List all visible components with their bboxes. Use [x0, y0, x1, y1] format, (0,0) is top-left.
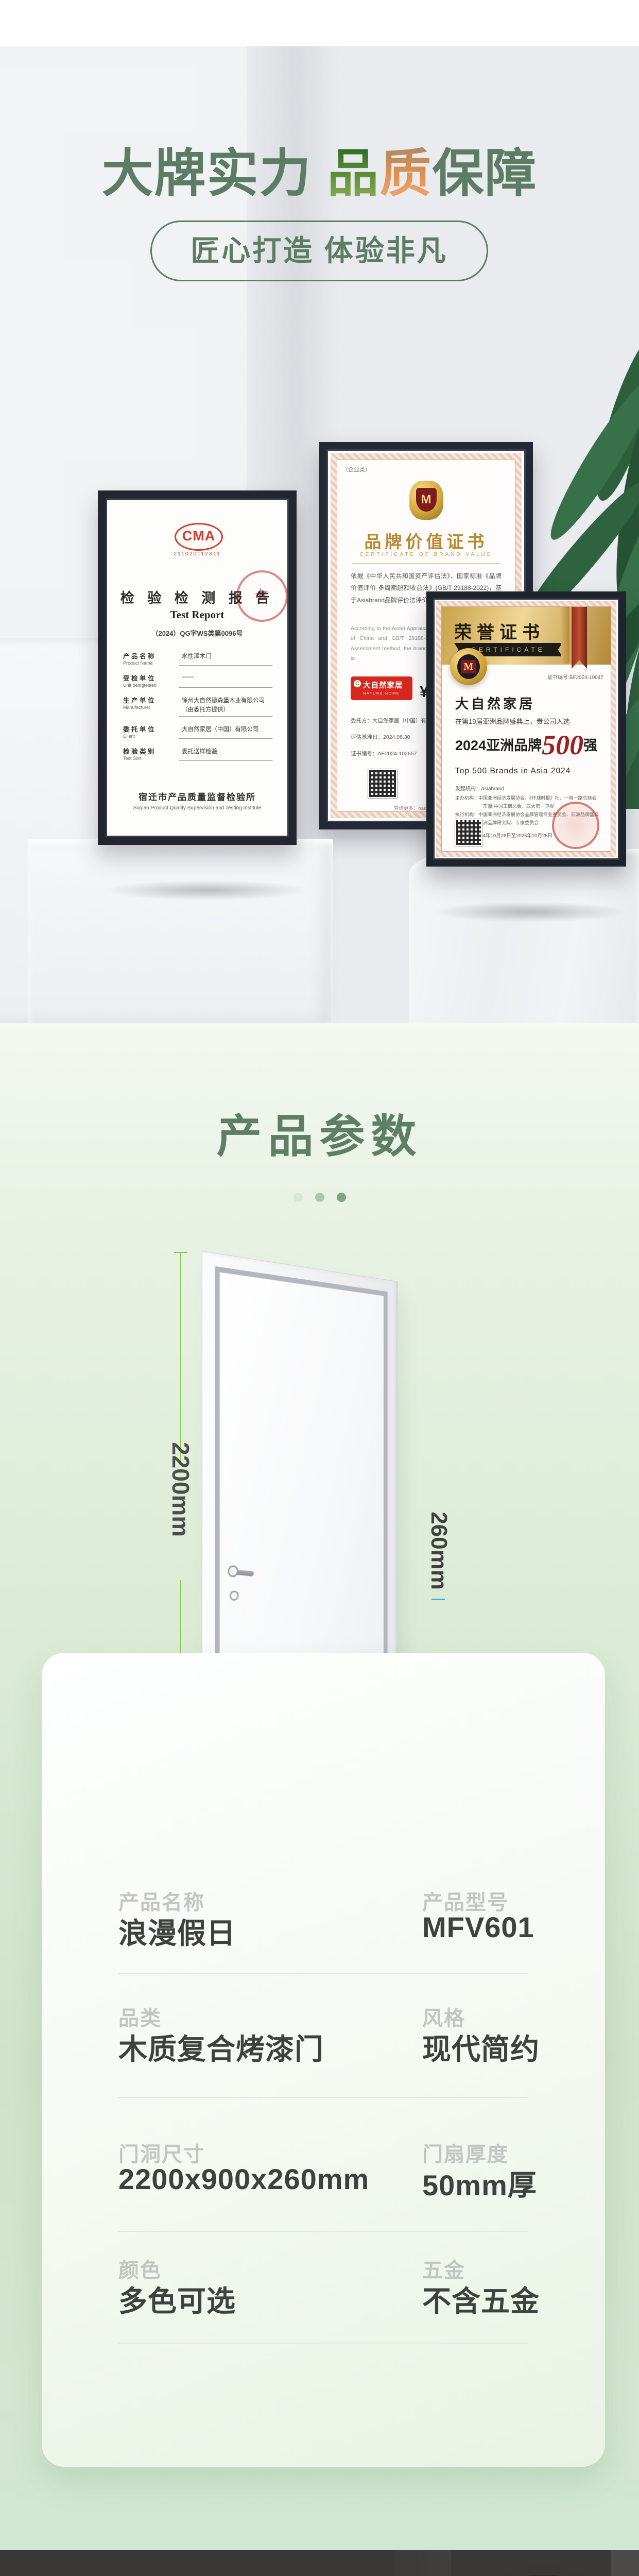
- honor-intro: 在第19届亚洲品牌盛典上，贵公司入选: [455, 716, 569, 726]
- dim-depth-label: 260mm: [426, 1510, 452, 1592]
- hero-title-zhi: 质: [379, 145, 432, 202]
- test-report-no: （2024）QG字WS类第0096号: [106, 628, 289, 638]
- nature-home-leaf-icon: C: [354, 680, 361, 687]
- brand-cert-subtitle: CERTIFICATE OF BRAND VALUE: [337, 552, 515, 557]
- certificate-honor: 荣誉证书 CERTIFICATE M 证书编号:BF2024-10047 大自然…: [426, 591, 626, 867]
- spec-value: 2200x900x260mm: [118, 2162, 369, 2196]
- params-title: 产品参数: [0, 1100, 639, 1165]
- honor-cert-no: 证书编号:BF2024-10047: [547, 673, 603, 681]
- brand-cert-tag: （企业类）: [342, 465, 371, 473]
- honor-award-en: Top 500 Brands in Asia 2024: [455, 767, 571, 776]
- honor-award-line: 2024亚洲品牌500强: [455, 733, 597, 758]
- dim-height-label: 2200mm: [167, 1442, 195, 1530]
- field-row: 生 产 单 位Manufacturer 徐州大自然德森堡木业有限公司（由委托方提…: [123, 695, 272, 717]
- honor-seal-icon: [552, 802, 599, 849]
- field-row: 检 验 类 别Test Sort 委托送样检验: [123, 746, 272, 761]
- spec-value: 木质复合烤漆门: [118, 2026, 324, 2068]
- spec-value: MFV601: [422, 1910, 534, 1944]
- honor-brand: 大自然家居: [455, 693, 535, 713]
- pedestal-left: [28, 839, 333, 1023]
- title-dots: [0, 1193, 639, 1205]
- honor-qr-code: [455, 819, 482, 846]
- hero-section: 大牌实力 品质保障 匠心打造 体验非凡 （企业类） M 品牌价值证书 CERTI…: [0, 46, 639, 1023]
- test-report-fields: 产 品 名 称Product Name 水性漆木门 受 检 单 位Unit be…: [123, 651, 272, 761]
- brand-cert-emblem-icon: M: [409, 481, 443, 520]
- service-section: 金保姆服务 全国1000+实体门店支持 咨询下单 › 上门量尺 › 签订合同 订…: [0, 2550, 639, 2576]
- field-row: 产 品 名 称Product Name 水性漆木门: [123, 651, 272, 666]
- honor-title: 荣誉证书: [454, 618, 545, 643]
- hero-title-pre: 大牌实力: [102, 145, 327, 202]
- field-row: 受 检 单 位Unit beingtested ——: [123, 673, 272, 688]
- cma-logo-icon: CMA: [175, 523, 223, 551]
- nature-home-logo: C 大自然家居 NATURE HOME: [351, 676, 412, 700]
- test-report-org: 宿迁市产品质量监督检验所: [106, 790, 289, 803]
- honor-medal-icon: M: [450, 648, 487, 685]
- test-report-subtitle: Test Report: [106, 608, 289, 621]
- cma-number: 211020112311: [106, 551, 289, 557]
- spec-value: 多色可选: [118, 2278, 236, 2320]
- spec-value: 浪漫假日: [118, 1910, 236, 1952]
- test-report-org-en: Suqian Product Quality Supervision and T…: [106, 805, 289, 811]
- service-photo: [320, 2550, 639, 2576]
- hero-subtitle-pill: 匠心打造 体验非凡: [150, 221, 488, 281]
- hero-title: 大牌实力 品质保障: [0, 147, 639, 201]
- product-params-section: 产品参数 2200mm 260mm 900mm 产品名称 浪漫假日 产品型号 M…: [0, 1023, 639, 2550]
- brand-cert-title: 品牌价值证书: [337, 528, 515, 553]
- hero-title-post: 保障: [432, 145, 537, 202]
- test-report-title: 检 验 检 测 报 告: [106, 587, 289, 607]
- depth-tick: [431, 1599, 445, 1600]
- spec-value: 不含五金: [422, 2278, 540, 2320]
- brand-cert-qr-code: [368, 769, 397, 798]
- field-row: 委 托 单 位Client 大自然家居（中国）有限公司: [123, 724, 272, 739]
- spec-value: 50mm厚: [422, 2162, 537, 2204]
- spec-value: 现代简约: [422, 2026, 540, 2068]
- spec-card: 产品名称 浪漫假日 产品型号 MFV601 品类 木质复合烤漆门 风格 现代简约…: [42, 1653, 605, 2467]
- pedestal-marble: [409, 849, 639, 1023]
- certificate-test-report: CMA 211020112311 ★ 检 验 检 测 报 告 Test Repo…: [98, 490, 297, 845]
- product-detail-page: { "colors": { "title_green": "#5d7c64", …: [0, 0, 639, 2576]
- hero-title-pin: 品: [327, 145, 379, 202]
- honor-ribbon-icon: [572, 607, 587, 669]
